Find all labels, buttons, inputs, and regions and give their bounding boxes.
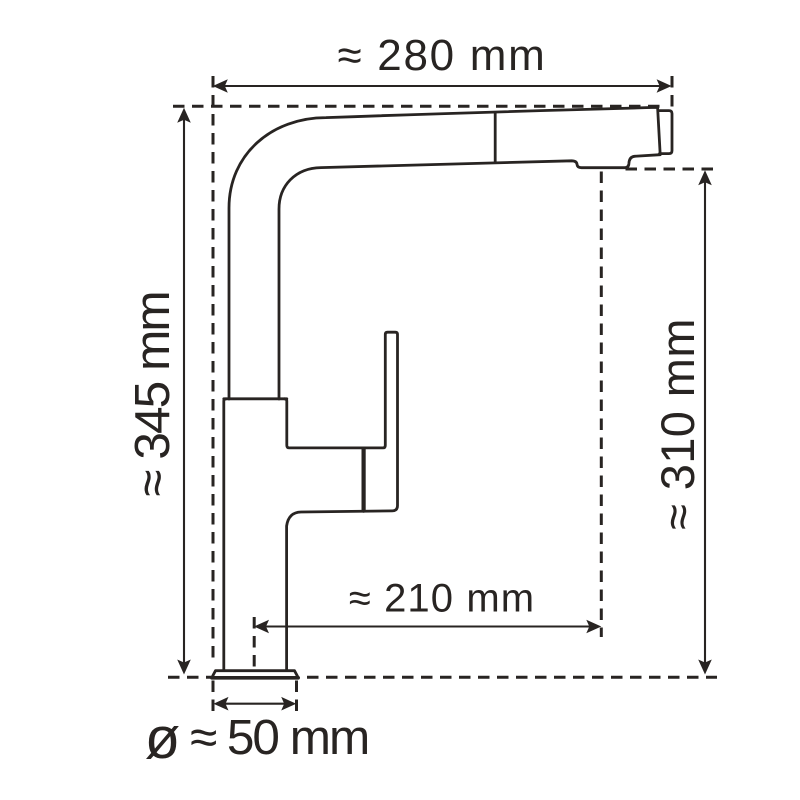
svg-text:≈ 280 mm: ≈ 280 mm — [338, 31, 547, 80]
svg-text:ø ≈ 50 mm: ø ≈ 50 mm — [145, 706, 368, 771]
svg-text:≈ 310 mm: ≈ 310 mm — [651, 318, 704, 530]
svg-text:≈ 210 mm: ≈ 210 mm — [349, 577, 535, 621]
svg-text:≈ 345 mm: ≈ 345 mm — [125, 292, 180, 497]
